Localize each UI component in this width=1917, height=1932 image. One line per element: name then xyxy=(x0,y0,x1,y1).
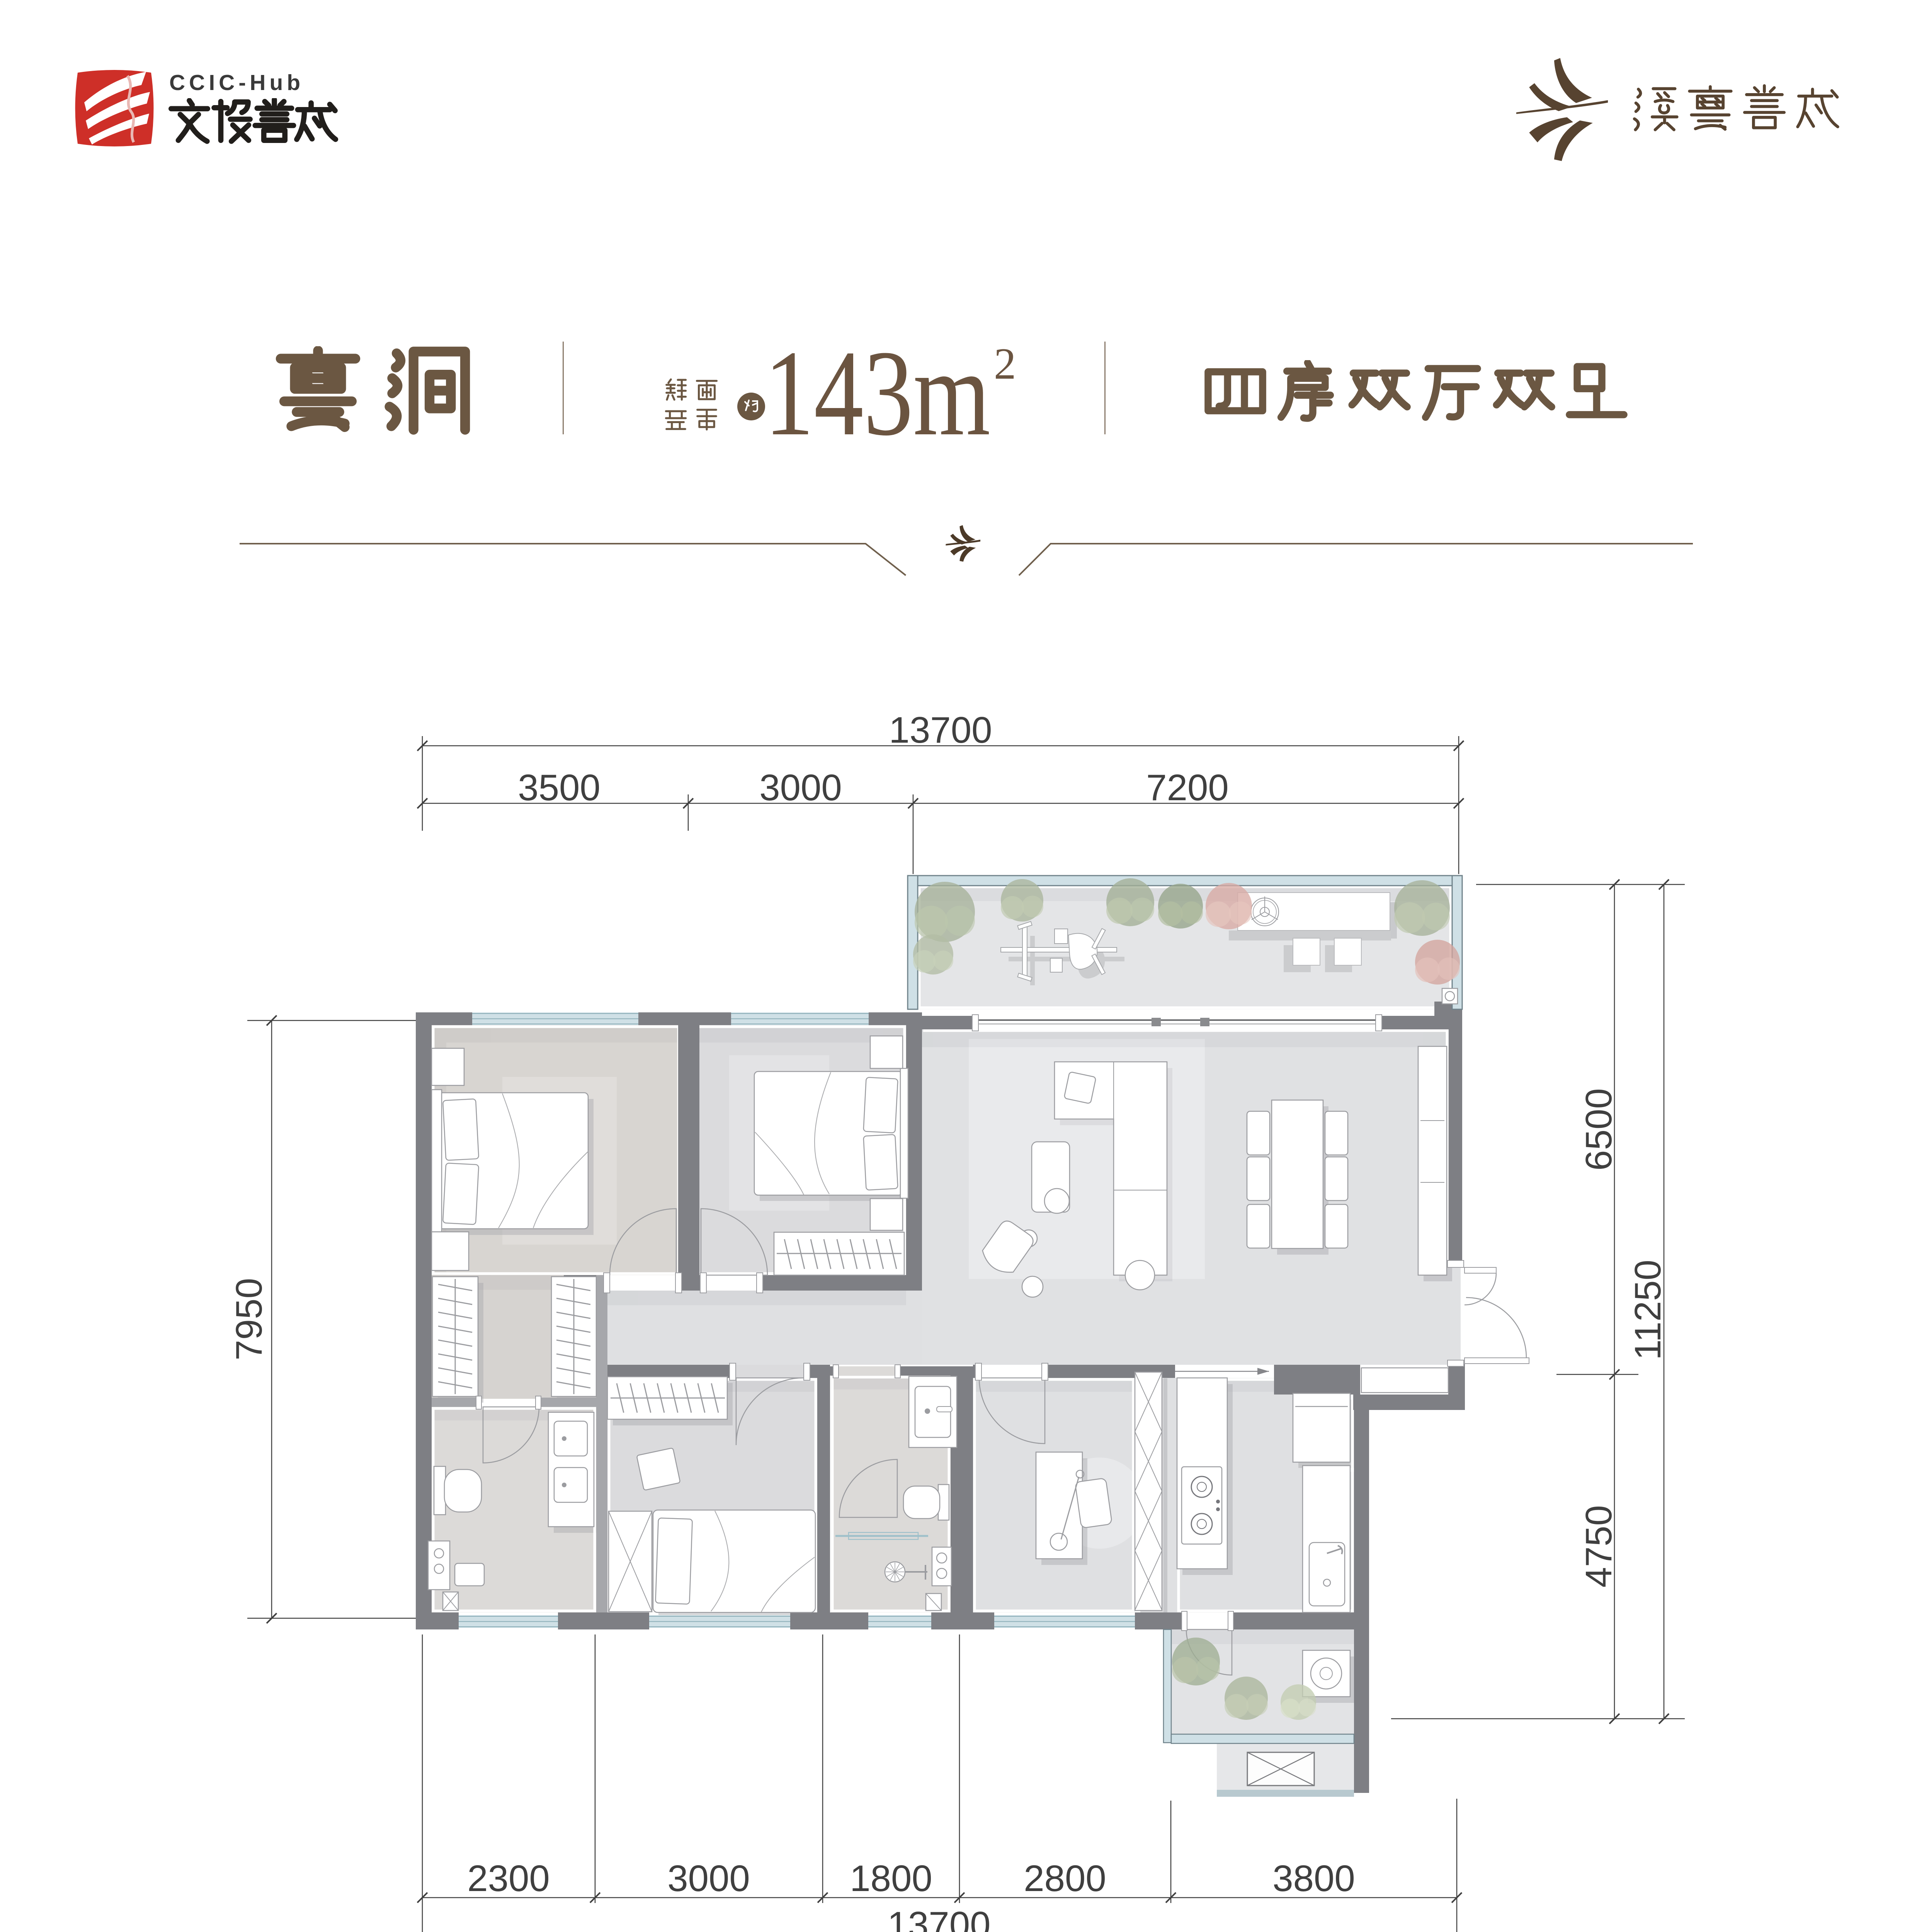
svg-text:13700: 13700 xyxy=(889,709,992,751)
svg-text:2: 2 xyxy=(994,339,1016,388)
svg-text:2300: 2300 xyxy=(467,1858,550,1899)
svg-text:11250: 11250 xyxy=(1627,1260,1669,1360)
svg-text:3500: 3500 xyxy=(518,767,600,808)
svg-text:3000: 3000 xyxy=(759,767,842,808)
svg-text:3800: 3800 xyxy=(1272,1858,1355,1899)
svg-text:4750: 4750 xyxy=(1578,1505,1619,1588)
svg-text:2800: 2800 xyxy=(1024,1858,1106,1899)
svg-text:3000: 3000 xyxy=(667,1858,750,1899)
svg-text:143m: 143m xyxy=(764,325,990,461)
svg-text:CCIC-Hub: CCIC-Hub xyxy=(169,70,304,95)
svg-text:13700: 13700 xyxy=(888,1904,991,1932)
svg-text:6500: 6500 xyxy=(1578,1088,1619,1171)
svg-text:7950: 7950 xyxy=(228,1278,270,1361)
svg-text:7200: 7200 xyxy=(1146,767,1229,808)
svg-text:1800: 1800 xyxy=(850,1858,932,1899)
